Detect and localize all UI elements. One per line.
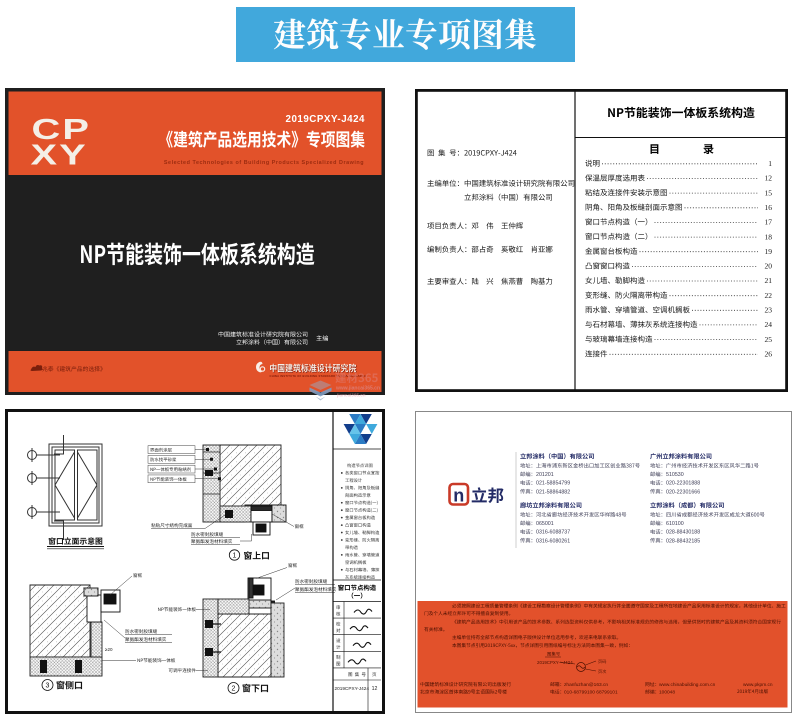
svg-text:zhanfuzhan@163.cn: zhanfuzhan@163.cn bbox=[564, 682, 608, 688]
svg-text:16: 16 bbox=[765, 203, 773, 212]
svg-text:028-88432185: 028-88432185 bbox=[666, 538, 700, 544]
svg-text:2019CPXY-J424: 2019CPXY-J424 bbox=[286, 114, 366, 125]
svg-text:www.jiancai365.cn: www.jiancai365.cn bbox=[335, 386, 380, 392]
svg-text:CHINA INSTITUTE OF BUILDING ST: CHINA INSTITUTE OF BUILDING STANDARD DES… bbox=[270, 374, 367, 378]
svg-text:065001: 065001 bbox=[536, 521, 554, 527]
svg-text:24: 24 bbox=[765, 320, 773, 329]
svg-text:020-22301666: 020-22301666 bbox=[666, 489, 700, 495]
svg-text:25: 25 bbox=[765, 335, 773, 344]
svg-text:010-68799100 68799101: 010-68799100 68799101 bbox=[564, 690, 618, 696]
svg-text:1: 1 bbox=[233, 553, 237, 560]
svg-text:17: 17 bbox=[765, 218, 773, 227]
svg-text:22: 22 bbox=[765, 291, 773, 300]
svg-text:3: 3 bbox=[46, 683, 50, 690]
svg-text:020-22301888: 020-22301888 bbox=[666, 481, 700, 487]
svg-text:jiancai365.cn: jiancai365.cn bbox=[336, 393, 366, 398]
svg-text:26: 26 bbox=[765, 349, 773, 358]
svg-text:0316-6080261: 0316-6080261 bbox=[536, 538, 570, 544]
svg-text:18: 18 bbox=[765, 232, 773, 241]
svg-text:100048: 100048 bbox=[659, 690, 675, 696]
svg-text:12: 12 bbox=[765, 174, 773, 183]
svg-text:Selected Technologies of Build: Selected Technologies of Building Produc… bbox=[164, 160, 364, 166]
svg-text:0316-6088737: 0316-6088737 bbox=[536, 530, 570, 536]
svg-text:201201: 201201 bbox=[536, 472, 554, 478]
svg-text:20: 20 bbox=[765, 262, 773, 271]
svg-text:19: 19 bbox=[765, 247, 773, 256]
svg-text:n: n bbox=[453, 486, 464, 506]
svg-text:15: 15 bbox=[765, 188, 773, 197]
svg-text:www.pkpm.cn: www.pkpm.cn bbox=[743, 682, 773, 688]
svg-text:12: 12 bbox=[372, 686, 378, 692]
svg-text:021-58864882: 021-58864882 bbox=[536, 489, 570, 495]
svg-text:021-58854799: 021-58854799 bbox=[536, 481, 570, 487]
svg-text:2019CPXY—J424: 2019CPXY—J424 bbox=[537, 660, 573, 665]
svg-text:610100: 610100 bbox=[666, 521, 684, 527]
svg-text:XY: XY bbox=[31, 139, 88, 171]
svg-text:510530: 510530 bbox=[666, 472, 684, 478]
svg-text:028-88430188: 028-88430188 bbox=[666, 530, 700, 536]
svg-text:2: 2 bbox=[232, 686, 236, 693]
svg-text:2019CPXY-J424: 2019CPXY-J424 bbox=[335, 686, 370, 691]
svg-text:www.chinabuilding.com.cn: www.chinabuilding.com.cn bbox=[659, 682, 716, 688]
svg-text:≥20: ≥20 bbox=[105, 647, 113, 652]
svg-text:1: 1 bbox=[768, 159, 772, 168]
svg-text:23: 23 bbox=[765, 306, 773, 315]
svg-text:21: 21 bbox=[765, 276, 773, 285]
